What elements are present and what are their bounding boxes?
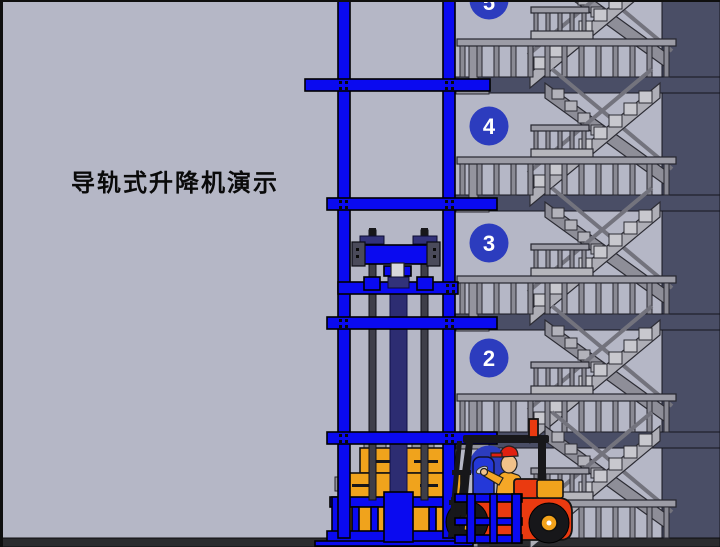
guide-rod-left (369, 230, 376, 500)
cylinder-base (384, 492, 413, 542)
guide-rod-right (421, 230, 428, 500)
hydraulic-mast (390, 279, 407, 499)
top-border (0, 0, 720, 2)
shaft-gate (455, 494, 522, 543)
page-title: 导轨式升降机演示 (71, 169, 279, 197)
animation-stage: 5 4 3 2 (0, 0, 720, 547)
floor-number: 5 (483, 0, 495, 15)
rear-wheel (529, 503, 569, 543)
floor-slab (455, 77, 720, 93)
cross-beam (327, 198, 497, 210)
left-border (0, 0, 3, 547)
floor-badge-3: 3 (470, 224, 509, 263)
floor-number: 2 (483, 346, 495, 371)
cross-beam (305, 79, 490, 91)
driver-head (501, 455, 517, 473)
floor-badge-2: 2 (470, 339, 509, 378)
floor-badge-4: 4 (470, 107, 509, 146)
exhaust-pipe (529, 419, 538, 437)
floor-number: 3 (483, 231, 495, 256)
floor-number: 4 (483, 114, 496, 139)
cross-beam (327, 317, 497, 329)
counterweight-block (537, 480, 563, 498)
